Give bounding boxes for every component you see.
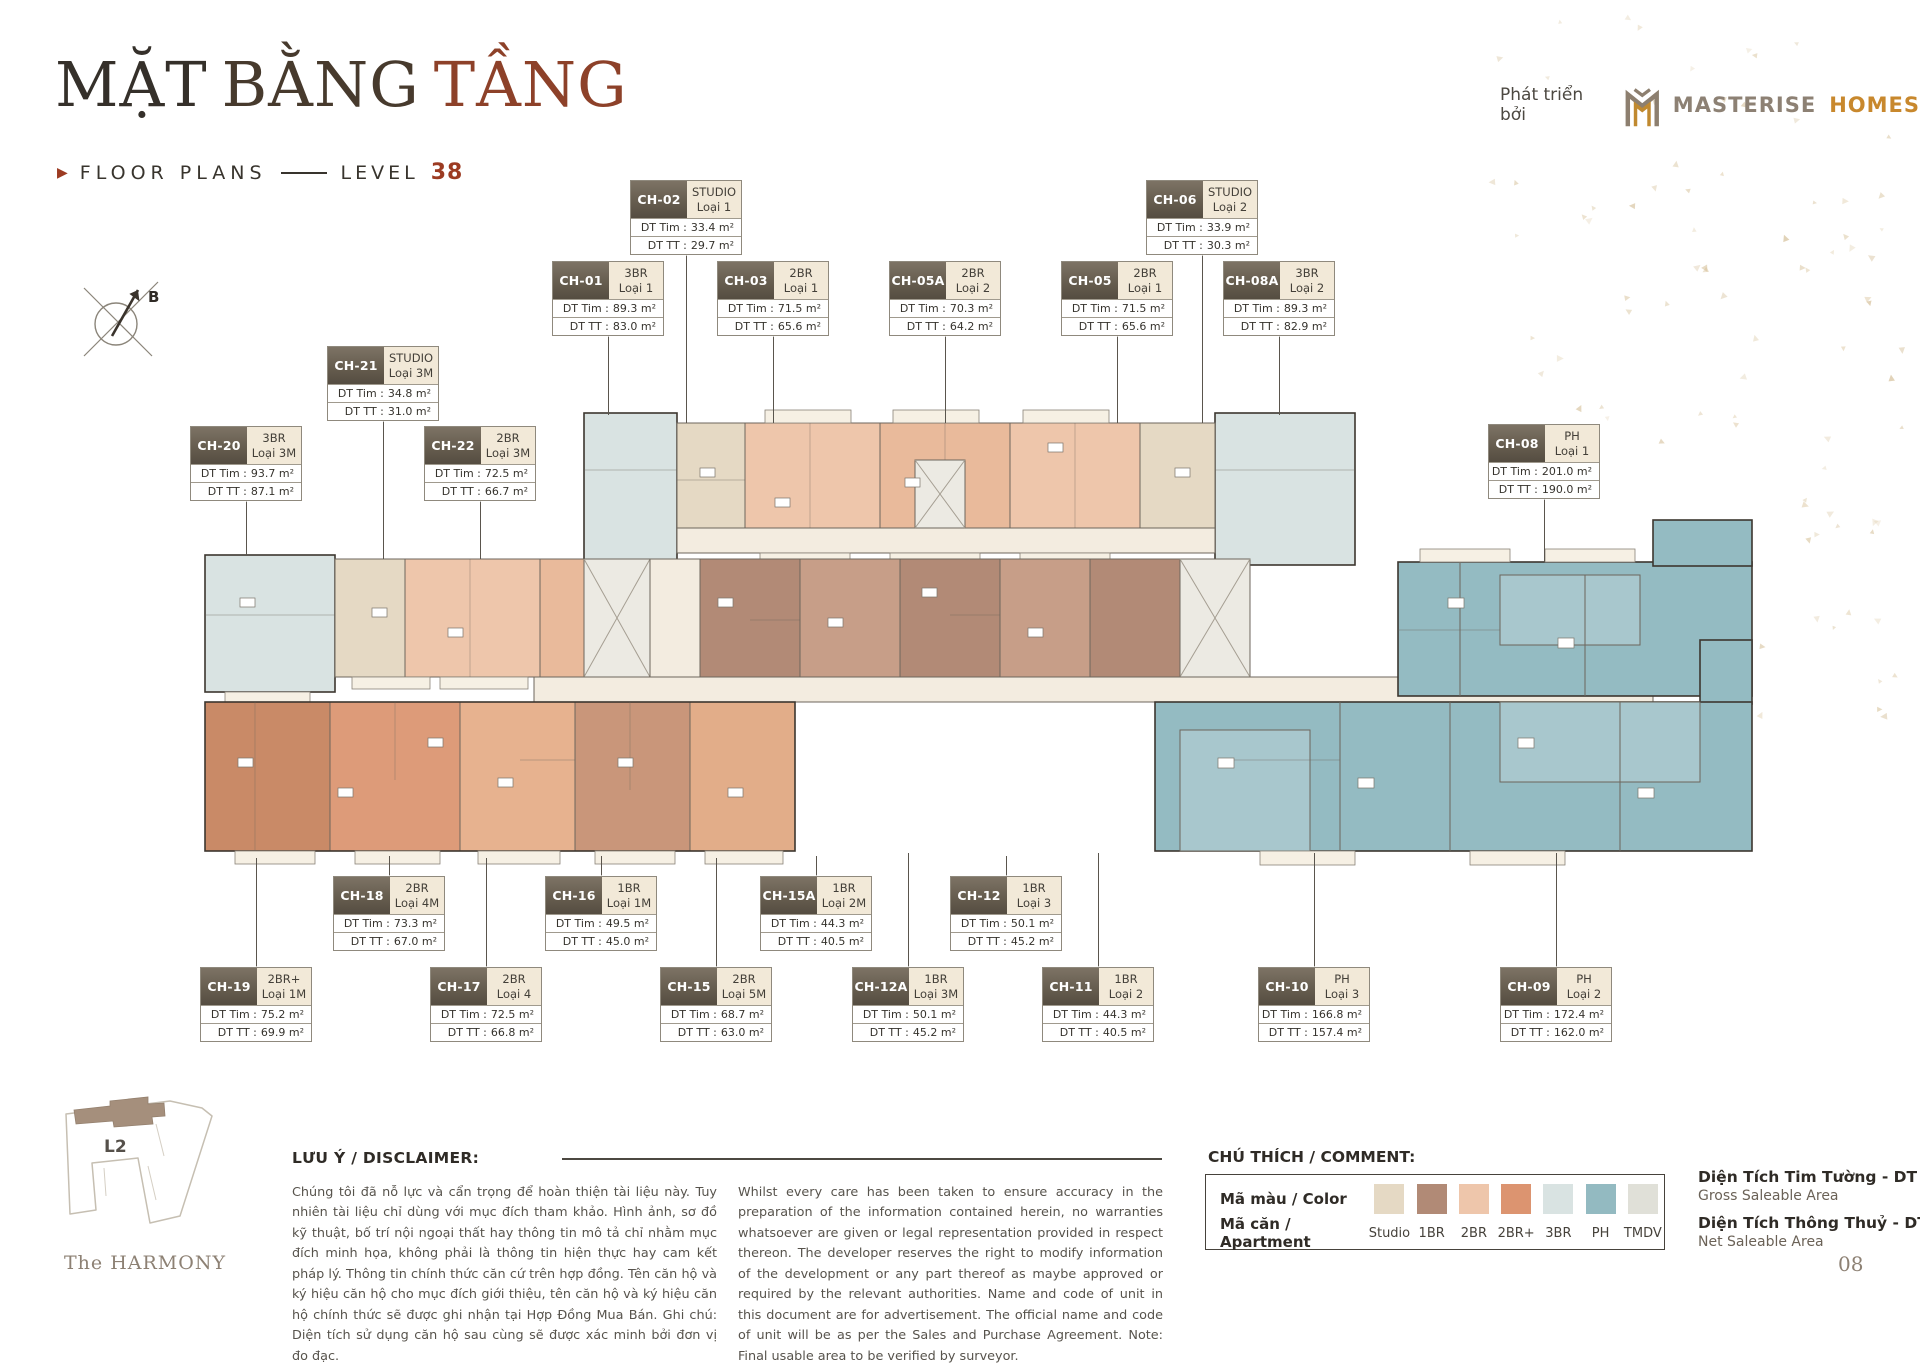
- triangle-dot: ▲: [1831, 625, 1836, 631]
- unit-type: 2BRLoại 4M: [390, 877, 444, 914]
- unit-code: CH-12A: [853, 968, 909, 1005]
- triangle-dot: ▲: [1555, 355, 1564, 362]
- unit-dt-tim: DT Tim : 44.3 m²: [1043, 1005, 1153, 1023]
- triangle-dot: ▲: [1692, 262, 1703, 273]
- unit-type: 2BRLoại 4: [487, 968, 541, 1005]
- brand-name-masterise: MASTERISE: [1673, 93, 1816, 117]
- arrow-right-icon: ▶: [57, 165, 68, 181]
- connector-line-ch-19: [256, 858, 257, 967]
- unit-type: 3BRLoại 1: [609, 262, 663, 299]
- triangle-dot: ▲: [1875, 192, 1885, 202]
- connector-line-ch-20: [246, 496, 247, 555]
- page-title-part: MẶT: [55, 48, 208, 121]
- connector-line-ch-10: [1314, 853, 1315, 967]
- triangle-dot: ▲: [1865, 252, 1876, 262]
- connector-line-ch-21: [383, 416, 384, 559]
- connector-line-ch-12: [1006, 856, 1007, 876]
- unit-type: 1BRLoại 2M: [817, 877, 871, 914]
- unit-dt-tim: DT Tim : 201.0 m²: [1489, 462, 1599, 480]
- unit-type: 2BR+Loại 1M: [257, 968, 311, 1005]
- unit-dt-tt: DT TT : 40.5 m²: [1043, 1023, 1153, 1041]
- triangle-dot: ▲: [1624, 14, 1634, 23]
- triangle-dot: ▲: [1802, 496, 1809, 504]
- unit-dt-tt: DT TT : 65.6 m²: [1062, 317, 1172, 335]
- subtitle-floor-plans: FLOOR PLANS: [80, 162, 267, 184]
- page-title-part: BẰNG: [222, 48, 420, 121]
- unit-dt-tim: DT Tim : 68.7 m²: [661, 1005, 771, 1023]
- area-definition-title: Diện Tích Tim Tường - DT Tim: [1698, 1168, 1918, 1186]
- unit-dt-tt: DT TT : 45.2 m²: [951, 932, 1061, 950]
- triangle-dot: ▲: [1687, 65, 1695, 73]
- unit-code: CH-15: [661, 968, 717, 1005]
- unit-label-ch-11: CH-111BRLoại 2DT Tim : 44.3 m²DT TT : 40…: [1042, 967, 1154, 1042]
- legend-swatch-2br+: [1495, 1184, 1537, 1214]
- triangle-dot: ▲: [1898, 424, 1904, 430]
- triangle-dot: ▲: [1822, 433, 1832, 442]
- triangle-dot: ▲: [1876, 678, 1883, 685]
- unit-label-ch-15a: CH-15A1BRLoại 2MDT Tim : 44.3 m²DT TT : …: [760, 876, 872, 951]
- legend-label-3br: 3BR: [1537, 1226, 1579, 1241]
- triangle-dot: ▲: [1799, 265, 1807, 271]
- area-definition-title: Diện Tích Thông Thuỷ - DT TT: [1698, 1214, 1918, 1232]
- unit-code: CH-03: [718, 262, 774, 299]
- legend-color-row-label: Mã màu / Color: [1220, 1190, 1368, 1208]
- unit-type: 1BRLoại 1M: [602, 877, 656, 914]
- disclaimer-vietnamese: Chúng tôi đã nỗ lực và cẩn trọng để hoàn…: [292, 1183, 717, 1367]
- triangle-dot: ▲: [1745, 46, 1754, 54]
- triangle-dot: ▲: [1731, 413, 1737, 419]
- unit-dt-tt: DT TT : 87.1 m²: [191, 482, 301, 500]
- triangle-dot: ▲: [1738, 373, 1748, 382]
- triangle-dot: ▲: [1841, 344, 1846, 351]
- unit-type: 3BRLoại 2: [1280, 262, 1334, 299]
- developer-prefix: Phát triển bởi: [1500, 85, 1610, 125]
- triangle-dot: ▲: [1537, 368, 1547, 378]
- unit-dt-tim: DT Tim : 50.1 m²: [951, 914, 1061, 932]
- legend-label-ph: PH: [1579, 1226, 1621, 1241]
- triangle-dot: ▲: [1872, 518, 1883, 528]
- unit-label-ch-18: CH-182BRLoại 4MDT Tim : 73.3 m²DT TT : 6…: [333, 876, 445, 951]
- unit-dt-tt: DT TT : 190.0 m²: [1489, 480, 1599, 498]
- legend-swatch-2br: [1453, 1184, 1495, 1214]
- triangle-dot: ▲: [1719, 171, 1724, 177]
- unit-dt-tim: DT Tim : 89.3 m²: [553, 299, 663, 317]
- connector-line-ch-06: [1202, 250, 1203, 423]
- disclaimer-english: Whilst every care has been taken to ensu…: [738, 1183, 1163, 1367]
- unit-type: 2BRLoại 5M: [717, 968, 771, 1005]
- unit-dt-tt: DT TT : 83.0 m²: [553, 317, 663, 335]
- connector-line-ch-05a: [945, 331, 946, 423]
- unit-dt-tt: DT TT : 40.5 m²: [761, 932, 871, 950]
- unit-type: PHLoại 3: [1315, 968, 1369, 1005]
- triangle-dot: ▲: [1584, 215, 1595, 226]
- triangle-dot: ▲: [1717, 290, 1728, 301]
- triangle-dot: ▲: [1590, 204, 1597, 212]
- unit-dt-tim: DT Tim : 44.3 m²: [761, 914, 871, 932]
- unit-code: CH-08A: [1224, 262, 1280, 299]
- legend-swatch-3br: [1537, 1184, 1579, 1214]
- connector-line-ch-11: [1098, 853, 1099, 967]
- subtitle-divider-line: [281, 172, 327, 174]
- subtitle-level-label: LEVEL: [341, 162, 419, 184]
- triangle-dot: ▲: [1579, 212, 1587, 221]
- area-definition-subtitle: Gross Saleable Area: [1698, 1188, 1918, 1204]
- triangle-dot: ▲: [1512, 178, 1519, 186]
- legend-swatch-studio: [1368, 1184, 1410, 1214]
- triangle-dot: ▲: [1846, 243, 1856, 254]
- connector-line-ch-15a: [816, 856, 817, 876]
- triangle-dot: ▲: [1829, 249, 1836, 256]
- connector-line-ch-18: [389, 856, 390, 876]
- unit-dt-tim: DT Tim : 93.7 m²: [191, 464, 301, 482]
- unit-type: 2BRLoại 2: [946, 262, 1000, 299]
- unit-type: STUDIOLoại 3M: [384, 347, 438, 384]
- triangle-dot: ▲: [1880, 713, 1890, 721]
- triangle-dot: ▲: [1513, 234, 1519, 238]
- unit-dt-tt: DT TT : 65.6 m²: [718, 317, 828, 335]
- legend-apartment-row: Mã căn / Apartment Studio1BR2BR2BR+3BRPH…: [1220, 1216, 1664, 1250]
- unit-code: CH-22: [425, 427, 481, 464]
- unit-dt-tim: DT Tim : 89.3 m²: [1224, 299, 1334, 317]
- triangle-dot: ▲: [1604, 415, 1610, 422]
- unit-type: STUDIOLoại 1: [687, 181, 741, 218]
- unit-code: CH-08: [1489, 425, 1545, 462]
- triangle-dot: ▲: [1528, 336, 1534, 341]
- triangle-dot: ▲: [1804, 266, 1812, 274]
- triangle-dot: ▲: [1683, 186, 1691, 193]
- unit-code: CH-17: [431, 968, 487, 1005]
- triangle-dot: ▲: [1866, 299, 1873, 307]
- legend-box: Mã màu / Color Mã căn / Apartment Studio…: [1205, 1174, 1665, 1250]
- triangle-dot: ▲: [1898, 346, 1905, 355]
- unit-code: CH-18: [334, 877, 390, 914]
- triangle-dot: ▲: [1888, 373, 1896, 382]
- page-title: MẶTBẰNGTẦNG: [55, 48, 628, 121]
- triangle-dot: ▲: [1658, 438, 1667, 446]
- unit-label-ch-08: CH-08PHLoại 1DT Tim : 201.0 m²DT TT : 19…: [1488, 424, 1600, 499]
- legend-label-2br+: 2BR+: [1495, 1226, 1537, 1241]
- triangle-dot: ▲: [1701, 266, 1711, 275]
- site-map: L2: [52, 1096, 287, 1256]
- unit-dt-tim: DT Tim : 75.2 m²: [201, 1005, 311, 1023]
- triangle-dot: ▲: [1691, 227, 1696, 233]
- triangle-dot: ▲: [1759, 643, 1767, 650]
- legend-color-row: Mã màu / Color: [1220, 1182, 1664, 1216]
- unit-code: CH-20: [191, 427, 247, 464]
- unit-dt-tt: DT TT : 67.0 m²: [334, 932, 444, 950]
- unit-code: CH-09: [1501, 968, 1557, 1005]
- connector-line-ch-01: [608, 331, 609, 415]
- unit-type: PHLoại 1: [1545, 425, 1599, 462]
- unit-type: 2BRLoại 3M: [481, 427, 535, 464]
- unit-code: CH-05A: [890, 262, 946, 299]
- unit-dt-tt: DT TT : 31.0 m²: [328, 402, 438, 420]
- unit-dt-tt: DT TT : 66.7 m²: [425, 482, 535, 500]
- page-number: 08: [1838, 1252, 1863, 1276]
- unit-dt-tt: DT TT : 64.2 m²: [890, 317, 1000, 335]
- triangle-dot: ▲: [1891, 672, 1899, 680]
- triangle-dot: ▲: [1885, 134, 1892, 141]
- developer-brand: Phát triển bởi MASTERISE HOMES: [1500, 82, 1920, 128]
- triangle-dot: ▲: [1842, 197, 1851, 204]
- triangle-dot: ▲: [1487, 179, 1496, 186]
- unit-dt-tim: DT Tim : 70.3 m²: [890, 299, 1000, 317]
- unit-type: PHLoại 2: [1557, 968, 1611, 1005]
- triangle-dot: ▲: [1599, 404, 1606, 411]
- triangle-dot: ▲: [1651, 184, 1659, 193]
- unit-label-ch-20: CH-203BRLoại 3MDT Tim : 93.7 m²DT TT : 8…: [190, 426, 302, 501]
- unit-code: CH-21: [328, 347, 384, 384]
- unit-dt-tt: DT TT : 162.0 m²: [1501, 1023, 1611, 1041]
- unit-code: CH-19: [201, 968, 257, 1005]
- unit-label-ch-12: CH-121BRLoại 3DT Tim : 50.1 m²DT TT : 45…: [950, 876, 1062, 951]
- compass-north-label: B: [148, 288, 159, 306]
- triangle-dot: ▲: [1575, 402, 1584, 412]
- connector-line-ch-08a: [1279, 331, 1280, 415]
- legend-swatch-1br: [1411, 1184, 1453, 1214]
- triangle-dot: ▲: [1545, 75, 1552, 81]
- triangle-dot: ▲: [1864, 293, 1874, 302]
- triangle-dot: ▲: [1623, 307, 1633, 316]
- unit-dt-tt: DT TT : 45.2 m²: [853, 1023, 963, 1041]
- unit-type: 1BRLoại 3: [1007, 877, 1061, 914]
- unit-dt-tim: DT Tim : 34.8 m²: [328, 384, 438, 402]
- highlighted-block-l2: [74, 1097, 165, 1127]
- unit-code: CH-02: [631, 181, 687, 218]
- unit-type: 2BRLoại 1: [1118, 262, 1172, 299]
- connector-line-ch-22: [480, 496, 481, 559]
- triangle-dot: ▲: [1878, 227, 1884, 233]
- triangle-dot: ▲: [1730, 419, 1739, 428]
- connector-line-ch-09: [1556, 853, 1557, 967]
- triangle-dot: ▲: [1757, 709, 1766, 719]
- unit-code: CH-15A: [761, 877, 817, 914]
- level-number: 38: [431, 160, 464, 185]
- unit-label-ch-21: CH-21STUDIOLoại 3MDT Tim : 34.8 m²DT TT …: [327, 346, 439, 421]
- unit-code: CH-06: [1147, 181, 1203, 218]
- triangle-dot: ▲: [1780, 233, 1789, 243]
- unit-dt-tt: DT TT : 69.9 m²: [201, 1023, 311, 1041]
- triangle-dot: ▲: [1834, 523, 1841, 530]
- triangle-dot: ▲: [1663, 300, 1670, 308]
- connector-line-ch-17: [486, 858, 487, 967]
- unit-dt-tim: DT Tim : 72.5 m²: [431, 1005, 541, 1023]
- unit-dt-tim: DT Tim : 71.5 m²: [718, 299, 828, 317]
- page-title-part: TẦNG: [434, 48, 628, 121]
- connector-line-ch-16: [601, 856, 602, 876]
- unit-label-ch-22: CH-222BRLoại 3MDT Tim : 72.5 m²DT TT : 6…: [424, 426, 536, 501]
- triangle-dot: ▲: [1872, 615, 1883, 625]
- legend-swatch-tmdv: [1622, 1184, 1664, 1214]
- legend-label-studio: Studio: [1368, 1226, 1410, 1241]
- unit-dt-tt: DT TT : 63.0 m²: [661, 1023, 771, 1041]
- unit-code: CH-05: [1062, 262, 1118, 299]
- unit-type: 1BRLoại 2: [1099, 968, 1153, 1005]
- unit-dt-tt: DT TT : 45.0 m²: [546, 932, 656, 950]
- triangle-dot: ▲: [1812, 201, 1818, 206]
- legend-label-2br: 2BR: [1453, 1226, 1495, 1241]
- unit-type: 3BRLoại 3M: [247, 427, 301, 464]
- connector-line-ch-15: [716, 858, 717, 967]
- triangle-dot: ▲: [1697, 411, 1705, 418]
- unit-dt-tim: DT Tim : 50.1 m²: [853, 1005, 963, 1023]
- compass-icon: B: [72, 268, 182, 372]
- triangle-dot: ▲: [1805, 536, 1813, 545]
- triangle-dot: ▲: [1700, 263, 1710, 274]
- triangle-dot: ▲: [1870, 529, 1876, 536]
- legend-title: CHÚ THÍCH / COMMENT:: [1208, 1148, 1415, 1166]
- disclaimer-heading: LƯU Ý / DISCLAIMER:: [292, 1149, 479, 1167]
- legend-label-tmdv: TMDV: [1622, 1226, 1664, 1241]
- unit-code: CH-01: [553, 262, 609, 299]
- unit-label-ch-01: CH-013BRLoại 1DT Tim : 89.3 m²DT TT : 83…: [552, 261, 664, 336]
- unit-code: CH-16: [546, 877, 602, 914]
- unit-dt-tim: DT Tim : 166.8 m²: [1259, 1005, 1369, 1023]
- unit-dt-tt: DT TT : 29.7 m²: [631, 236, 741, 254]
- connector-line-ch-08: [1544, 494, 1545, 562]
- unit-label-ch-05a: CH-05A2BRLoại 2DT Tim : 70.3 m²DT TT : 6…: [889, 261, 1001, 336]
- unit-label-ch-03: CH-032BRLoại 1DT Tim : 71.5 m²DT TT : 65…: [717, 261, 829, 336]
- unit-label-ch-16: CH-161BRLoại 1MDT Tim : 49.5 m²DT TT : 4…: [545, 876, 657, 951]
- unit-label-ch-10: CH-10PHLoại 3DT Tim : 166.8 m²DT TT : 15…: [1258, 967, 1370, 1042]
- unit-dt-tt: DT TT : 82.9 m²: [1224, 317, 1334, 335]
- masterise-homes-logo-icon: [1623, 82, 1662, 128]
- unit-type: 1BRLoại 3M: [909, 968, 963, 1005]
- triangle-dot: ▲: [1497, 54, 1507, 62]
- unit-code: CH-10: [1259, 968, 1315, 1005]
- triangle-dot: ▲: [1673, 158, 1680, 167]
- unit-label-ch-15: CH-152BRLoại 5MDT Tim : 68.7 m²DT TT : 6…: [660, 967, 772, 1042]
- legend-swatch-ph: [1579, 1184, 1621, 1214]
- decorative-triangle-pattern: ▲▲▲▲▲▲▲▲▲▲▲▲▲▲▲▲▲▲▲▲▲▲▲▲▲▲▲▲▲▲▲▲▲▲▲▲▲▲▲▲…: [0, 0, 1920, 1328]
- block-label: L2: [104, 1137, 127, 1157]
- disclaimer-rule: [562, 1158, 1162, 1160]
- triangle-dot: ▲: [1814, 615, 1821, 624]
- project-name: The HARMONY: [64, 1252, 226, 1274]
- unit-dt-tim: DT Tim : 33.4 m²: [631, 218, 741, 236]
- area-definition-net: Diện Tích Thông Thuỷ - DT TT Net Saleabl…: [1698, 1214, 1918, 1250]
- triangle-dot: ▲: [1800, 501, 1810, 510]
- area-definition-gross: Diện Tích Tim Tường - DT Tim Gross Salea…: [1698, 1168, 1918, 1204]
- unit-label-ch-06: CH-06STUDIOLoại 2DT Tim : 33.9 m²DT TT :…: [1146, 180, 1258, 255]
- legend-label-1br: 1BR: [1411, 1226, 1453, 1241]
- triangle-dot: ▲: [1624, 295, 1632, 302]
- triangle-dot: ▲: [1751, 53, 1758, 59]
- triangle-dot: ▲: [1840, 231, 1849, 240]
- connector-line-ch-02: [686, 250, 687, 423]
- unit-dt-tim: DT Tim : 49.5 m²: [546, 914, 656, 932]
- area-definition-subtitle: Net Saleable Area: [1698, 1234, 1918, 1250]
- unit-dt-tt: DT TT : 66.8 m²: [431, 1023, 541, 1041]
- unit-dt-tim: DT Tim : 172.4 m²: [1501, 1005, 1611, 1023]
- unit-label-ch-09: CH-09PHLoại 2DT Tim : 172.4 m²DT TT : 16…: [1500, 967, 1612, 1042]
- unit-dt-tim: DT Tim : 71.5 m²: [1062, 299, 1172, 317]
- triangle-dot: ▲: [1869, 517, 1879, 528]
- connector-line-ch-12a: [908, 853, 909, 967]
- page-subtitle: ▶ FLOOR PLANS LEVEL 38: [57, 160, 463, 185]
- unit-code: CH-11: [1043, 968, 1099, 1005]
- triangle-dot: ▲: [1751, 332, 1759, 341]
- triangle-dot: ▲: [1846, 608, 1853, 616]
- unit-dt-tt: DT TT : 30.3 m²: [1147, 236, 1257, 254]
- unit-dt-tt: DT TT : 157.4 m²: [1259, 1023, 1369, 1041]
- connector-line-ch-03: [773, 331, 774, 423]
- unit-code: CH-12: [951, 877, 1007, 914]
- legend-apartment-row-label: Mã căn / Apartment: [1220, 1215, 1368, 1251]
- unit-label-ch-17: CH-172BRLoại 4DT Tim : 72.5 m²DT TT : 66…: [430, 967, 542, 1042]
- brand-name-homes: HOMES: [1829, 93, 1920, 117]
- unit-dt-tim: DT Tim : 73.3 m²: [334, 914, 444, 932]
- unit-label-ch-08a: CH-08A3BRLoại 2DT Tim : 89.3 m²DT TT : 8…: [1223, 261, 1335, 336]
- floor-plan-drawing: [0, 0, 1920, 1328]
- triangle-dot: ▲: [1814, 532, 1821, 538]
- unit-type: 2BRLoại 1: [774, 262, 828, 299]
- triangle-dot: ▲: [1793, 41, 1800, 47]
- unit-dt-tim: DT Tim : 33.9 m²: [1147, 218, 1257, 236]
- unit-dt-tim: DT Tim : 72.5 m²: [425, 464, 535, 482]
- triangle-dot: ▲: [1877, 707, 1884, 712]
- triangle-dot: ▲: [1557, 20, 1562, 26]
- unit-label-ch-05: CH-052BRLoại 1DT Tim : 71.5 m²DT TT : 65…: [1061, 261, 1173, 336]
- triangle-dot: ▲: [1825, 508, 1836, 518]
- connector-line-ch-05: [1117, 331, 1118, 423]
- unit-label-ch-02: CH-02STUDIOLoại 1DT Tim : 33.4 m²DT TT :…: [630, 180, 742, 255]
- unit-label-ch-19: CH-192BR+Loại 1MDT Tim : 75.2 m²DT TT : …: [200, 967, 312, 1042]
- unit-label-ch-12a: CH-12A1BRLoại 3MDT Tim : 50.1 m²DT TT : …: [852, 967, 964, 1042]
- triangle-dot: ▲: [1635, 24, 1643, 33]
- triangle-dot: ▲: [1822, 465, 1829, 471]
- triangle-dot: ▲: [1628, 203, 1636, 210]
- unit-type: STUDIOLoại 2: [1203, 181, 1257, 218]
